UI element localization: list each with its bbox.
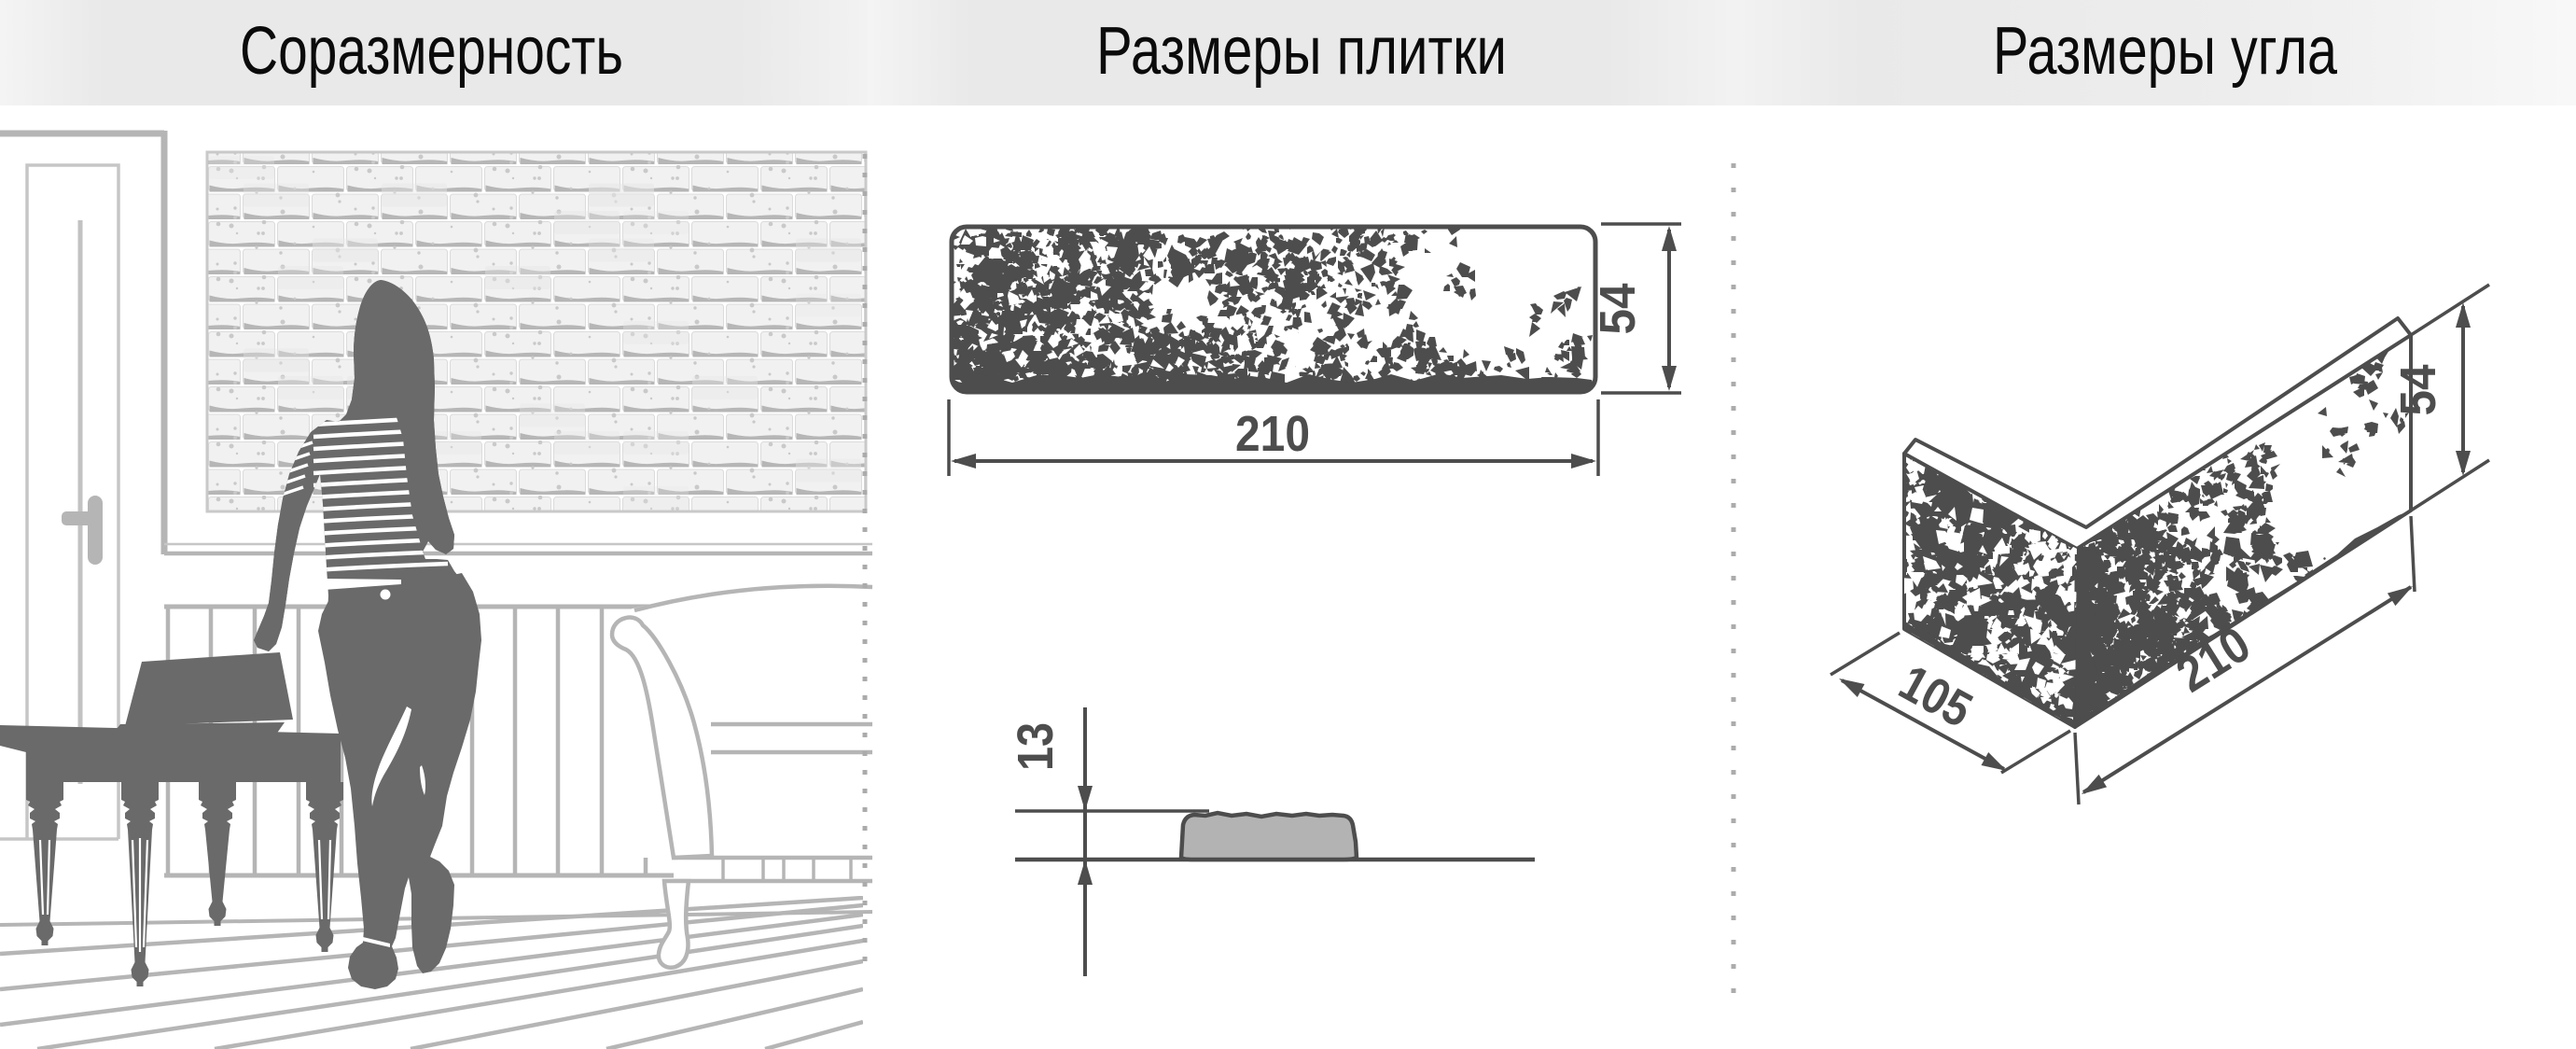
svg-text:Размеры плитки: Размеры плитки bbox=[1096, 14, 1507, 89]
svg-text:54: 54 bbox=[1590, 284, 1646, 335]
svg-text:13: 13 bbox=[1008, 722, 1064, 771]
svg-text:54: 54 bbox=[2390, 365, 2446, 416]
svg-text:Соразмерность: Соразмерность bbox=[240, 14, 623, 89]
svg-text:210: 210 bbox=[1235, 406, 1310, 462]
svg-text:Размеры угла: Размеры угла bbox=[1993, 14, 2338, 89]
